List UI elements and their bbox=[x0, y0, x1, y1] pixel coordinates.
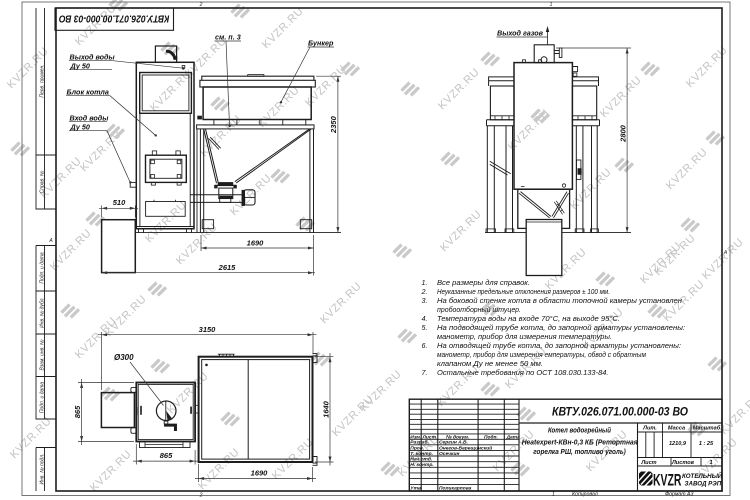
svg-text:KVZR: KVZR bbox=[653, 471, 682, 490]
svg-text:1690: 1690 bbox=[251, 469, 269, 478]
svg-text:На боковой стенке котла в обла: На боковой стенке котла в области топочн… bbox=[437, 296, 682, 305]
svg-text:2615: 2615 bbox=[218, 263, 237, 272]
svg-text:4.: 4. bbox=[422, 314, 428, 323]
svg-text:Температура воды на входе 70°С: Температура воды на входе 70°С, на выход… bbox=[437, 314, 620, 323]
svg-text:Нач.отд.: Нач.отд. bbox=[410, 457, 432, 463]
svg-text:Лист: Лист bbox=[640, 460, 656, 466]
svg-text:Листов: Листов bbox=[671, 460, 695, 466]
svg-text:Ду 50: Ду 50 bbox=[70, 62, 90, 71]
svg-text:Подп. и дата: Подп. и дата bbox=[40, 382, 46, 414]
svg-text:1.: 1. bbox=[422, 278, 428, 287]
svg-text:А: А bbox=[48, 238, 53, 244]
svg-text:Осечкин: Осечкин bbox=[439, 451, 459, 457]
svg-text:1640: 1640 bbox=[322, 400, 331, 418]
svg-text:Разраб.: Разраб. bbox=[410, 439, 429, 446]
svg-text:Подп.: Подп. bbox=[484, 434, 498, 440]
svg-text:ЗАВОД РЭП: ЗАВОД РЭП bbox=[685, 481, 722, 488]
svg-text:1210,9: 1210,9 bbox=[669, 441, 687, 447]
svg-text:2800: 2800 bbox=[618, 124, 627, 143]
svg-text:Вход воды: Вход воды bbox=[70, 114, 110, 123]
svg-text:Утв.: Утв. bbox=[410, 485, 422, 491]
svg-text:Ø300: Ø300 bbox=[114, 353, 134, 362]
svg-text:Пров.: Пров. bbox=[410, 445, 424, 451]
svg-text:А: А bbox=[723, 250, 728, 256]
svg-text:Инв. № дубл.: Инв. № дубл. bbox=[40, 297, 46, 328]
svg-text:На подводящей трубе котла, до: На подводящей трубе котла, до запорной а… bbox=[437, 323, 685, 332]
svg-text:1: 1 bbox=[550, 2, 553, 8]
svg-text:манометр, прибор для измерения: манометр, прибор для измерения температу… bbox=[437, 332, 612, 341]
svg-text:Изм.: Изм. bbox=[410, 434, 421, 440]
svg-text:Инв. № подл.: Инв. № подл. bbox=[40, 453, 46, 484]
svg-text:3.: 3. bbox=[422, 296, 428, 305]
svg-text:Выход воды: Выход воды bbox=[70, 53, 116, 62]
svg-text:Неуказанные предельные отклоне: Неуказанные предельные отклонения размер… bbox=[437, 287, 610, 296]
svg-text:Выход газов: Выход газов bbox=[497, 29, 544, 38]
svg-text:510: 510 bbox=[113, 198, 126, 207]
svg-text:2: 2 bbox=[199, 2, 203, 8]
svg-text:2.: 2. bbox=[421, 287, 428, 296]
svg-text:3150: 3150 bbox=[199, 325, 217, 334]
svg-text:Онегов-Верещинский: Онегов-Верещинский bbox=[439, 444, 492, 451]
svg-text:Перв. примен.: Перв. примен. bbox=[40, 64, 46, 97]
svg-text:пробоотборный штуцер.: пробоотборный штуцер. bbox=[437, 305, 521, 314]
svg-text:Лист: Лист bbox=[422, 434, 437, 440]
svg-text:865: 865 bbox=[160, 451, 173, 460]
svg-text:2350: 2350 bbox=[329, 115, 338, 134]
svg-text:манометр, прибор для измерения: манометр, прибор для измерения емператур… bbox=[437, 350, 646, 359]
svg-text:клапаном Ду не менее 50 мм.: клапаном Ду не менее 50 мм. bbox=[437, 359, 543, 368]
svg-text:№ докум.: № докум. bbox=[446, 434, 469, 440]
svg-text:Подп. и дата: Подп. и дата bbox=[40, 252, 46, 284]
svg-text:Взам. инв. №: Взам. инв. № bbox=[40, 339, 46, 371]
svg-text:Блок котла: Блок котла bbox=[67, 88, 109, 97]
svg-text:1: 1 bbox=[709, 460, 712, 466]
svg-text:КВТУ.026.071.00.000-03 ВО: КВТУ.026.071.00.000-03 ВО bbox=[59, 13, 170, 25]
svg-text:Поликарпова: Поликарпова bbox=[439, 485, 472, 491]
svg-text:7.: 7. bbox=[422, 368, 428, 377]
svg-text:Т. контр.: Т. контр. bbox=[410, 451, 433, 457]
svg-text:Справ. №: Справ. № bbox=[40, 170, 46, 193]
svg-text:Все размеры для справок.: Все размеры для справок. bbox=[437, 278, 530, 287]
svg-text:Масса: Масса bbox=[668, 426, 685, 432]
svg-text:см. п. 3: см. п. 3 bbox=[215, 33, 241, 42]
svg-text:Масштаб: Масштаб bbox=[693, 425, 721, 432]
svg-text:865: 865 bbox=[73, 405, 82, 418]
svg-text:Котел водогрейный: Котел водогрейный bbox=[548, 426, 612, 435]
svg-text:Сергин А.В.: Сергин А.В. bbox=[439, 440, 468, 446]
svg-text:КВТУ.026.071.00.000-03 ВО: КВТУ.026.071.00.000-03 ВО bbox=[552, 407, 688, 419]
svg-text:Дата: Дата bbox=[506, 434, 521, 440]
svg-text:горелка РШ, топливо уголь): горелка РШ, топливо уголь) bbox=[533, 447, 626, 456]
svg-text:1 : 25: 1 : 25 bbox=[699, 441, 714, 447]
svg-text:6.: 6. bbox=[422, 341, 428, 350]
svg-text:Лит.: Лит. bbox=[642, 426, 657, 432]
svg-text:Бункер: Бункер bbox=[308, 39, 334, 48]
svg-text:Ду 50: Ду 50 bbox=[70, 123, 90, 132]
svg-text:5.: 5. bbox=[422, 323, 428, 332]
svg-text:1690: 1690 bbox=[247, 239, 265, 248]
svg-text:1: 1 bbox=[552, 492, 555, 498]
svg-text:Копировал: Копировал bbox=[572, 492, 598, 498]
svg-text:2: 2 bbox=[199, 493, 203, 499]
svg-text:КОТЕЛЬНЫЙ: КОТЕЛЬНЫЙ bbox=[682, 472, 723, 480]
svg-text:Формат А3: Формат А3 bbox=[665, 492, 693, 498]
svg-text:Н. контр.: Н. контр. bbox=[410, 462, 433, 468]
svg-text:Heatexpert-КВн-0,3 КБ (Ретортн: Heatexpert-КВн-0,3 КБ (Ретортная bbox=[522, 437, 639, 446]
svg-text:На отводящей трубе котла, до з: На отводящей трубе котла, до запорной ар… bbox=[437, 341, 681, 350]
svg-text:Остальные требования по ОСТ 10: Остальные требования по ОСТ 108.030.133-… bbox=[437, 368, 609, 377]
